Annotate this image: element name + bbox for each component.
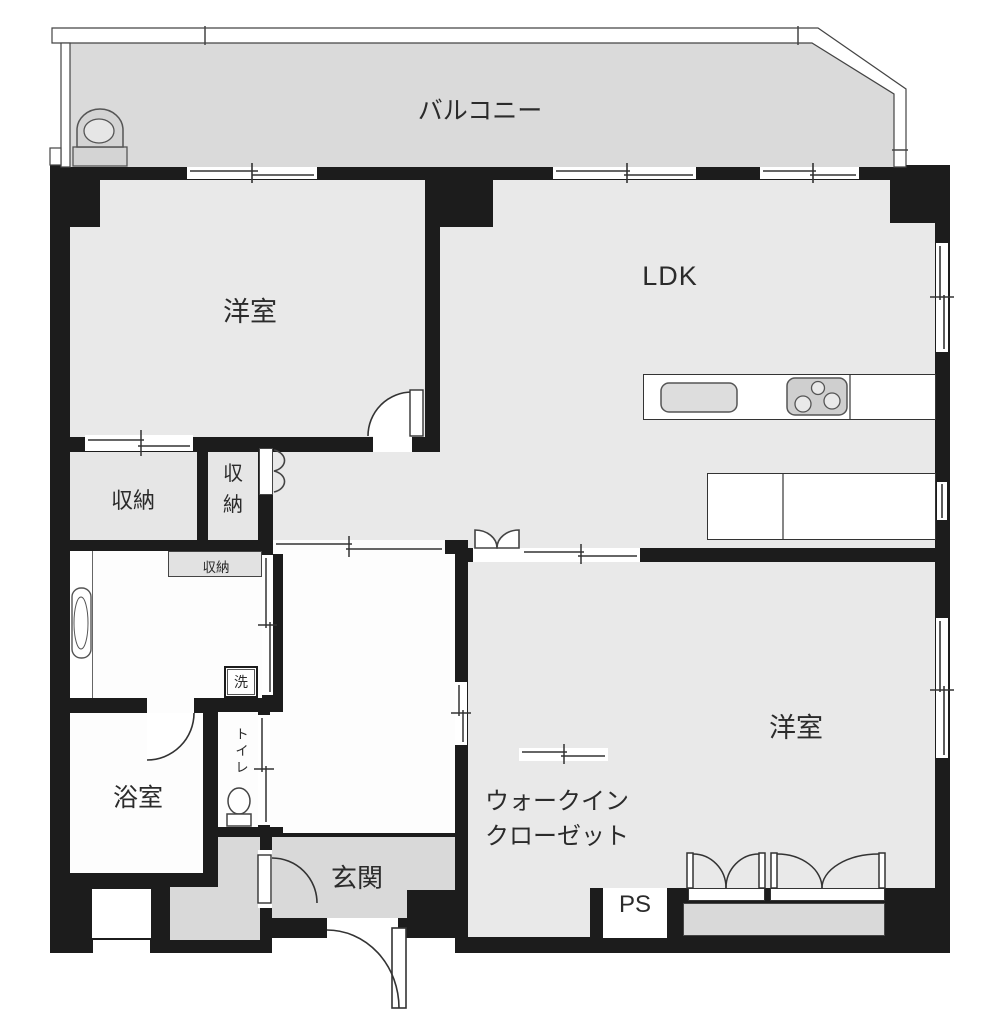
wic-label-line1: ウォークイン bbox=[467, 781, 647, 816]
window-right-small bbox=[937, 482, 947, 520]
closet-floor bbox=[683, 903, 885, 936]
closet-sliding-door bbox=[85, 435, 193, 451]
entrance-inner-door-gap bbox=[258, 850, 272, 908]
storage-1-label: 収納 bbox=[83, 483, 183, 515]
bedroom-lower-label: 洋室 bbox=[736, 706, 856, 745]
bath-door-gap bbox=[147, 698, 194, 714]
meter-box bbox=[90, 887, 153, 940]
washer-pan: 洗 bbox=[224, 666, 258, 698]
double-door-gap bbox=[473, 548, 521, 562]
entrance-side-floor bbox=[170, 887, 260, 940]
storage-2-label: 収納 bbox=[221, 459, 245, 521]
pipe-space-label: PS bbox=[605, 891, 665, 919]
exterior-gap bbox=[272, 938, 455, 953]
window-top-ldk-1 bbox=[553, 167, 696, 179]
ldk-label: LDK bbox=[610, 261, 730, 292]
window-right-ldk bbox=[936, 243, 948, 352]
hallway bbox=[283, 554, 455, 833]
bedroom-upper-label: 洋室 bbox=[190, 290, 310, 329]
hallway-patch bbox=[270, 712, 283, 827]
hall-partition-band bbox=[273, 540, 445, 554]
wall-corner-patch bbox=[407, 890, 468, 938]
bath-label: 浴室 bbox=[78, 778, 198, 814]
kitchen-counter bbox=[643, 374, 936, 420]
kitchen-cabinet bbox=[707, 473, 936, 540]
wall-corner-patch bbox=[440, 180, 493, 227]
storage-shelf-label: 収納 bbox=[186, 556, 246, 576]
washroom-sliding-door bbox=[262, 555, 273, 695]
storage-2-door bbox=[259, 448, 273, 495]
closet-shelf bbox=[688, 888, 765, 901]
window-top-ldk-2 bbox=[760, 167, 859, 179]
washroom-counter bbox=[70, 551, 93, 698]
wall-corner-patch bbox=[70, 180, 100, 227]
entrance-label: 玄関 bbox=[297, 858, 417, 895]
front-door-gap bbox=[327, 918, 398, 938]
window-right-bedroom bbox=[936, 618, 948, 758]
slop-sink-icon bbox=[73, 109, 127, 166]
washer-label: 洗 bbox=[234, 672, 248, 692]
wic-label-line2: クローゼット bbox=[467, 816, 647, 851]
entrance-side-floor bbox=[218, 837, 260, 887]
toilet-door bbox=[258, 715, 270, 825]
wall-corner-patch bbox=[890, 180, 935, 223]
meter-box-gap bbox=[93, 940, 150, 953]
bedroom-door-gap bbox=[373, 433, 412, 452]
wic-sliding-window bbox=[519, 748, 608, 761]
bedroom-lower-sliding-door bbox=[455, 682, 467, 745]
floor-plan: 洗 bbox=[0, 0, 992, 1016]
balcony-label: バルコニー bbox=[390, 91, 570, 127]
window-top-bedroom bbox=[187, 167, 317, 179]
closet-shelf bbox=[770, 888, 885, 901]
bedroom-lower-top-sliding bbox=[521, 548, 640, 562]
corridor bbox=[273, 452, 440, 540]
toilet-label: トイレ bbox=[230, 720, 250, 784]
